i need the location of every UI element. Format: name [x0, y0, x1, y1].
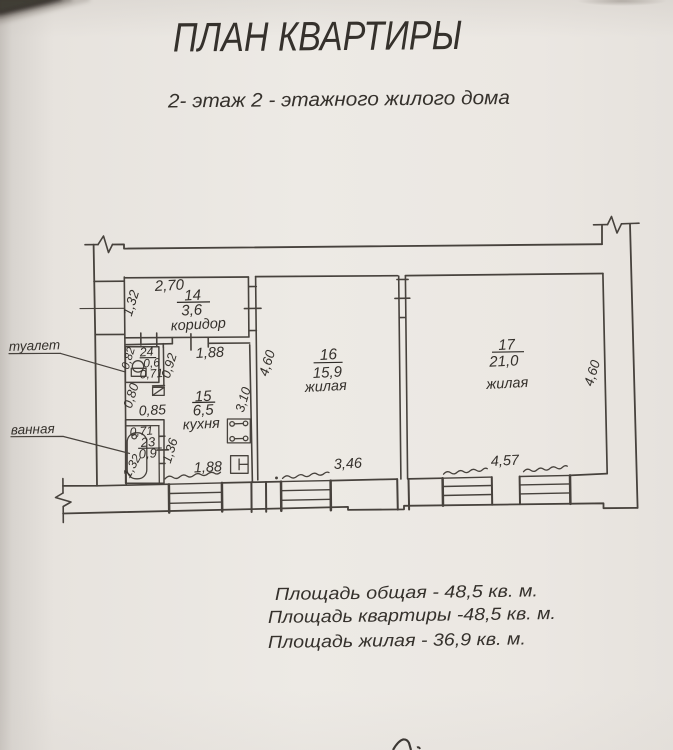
svg-text:1,88: 1,88: [193, 459, 222, 476]
svg-text:3,46: 3,46: [333, 455, 363, 473]
svg-text:Площадь общая - 48,5 кв. м.: Площадь общая - 48,5 кв. м.: [275, 580, 538, 604]
svg-text:2- этаж 2 - этажного жилого д: 2- этаж 2 - этажного жилого дома: [167, 87, 510, 113]
svg-text:коридор: коридор: [170, 316, 226, 335]
svg-text:4,57: 4,57: [490, 452, 520, 470]
svg-text:Площадь квартиры -48,5 кв. м.: Площадь квартиры -48,5 кв. м.: [268, 603, 556, 627]
svg-text:ПЛАН КВАРТИРЫ: ПЛАН КВАРТИРЫ: [173, 12, 462, 61]
svg-text:Площадь жилая - 36,9 кв. м.: Площадь жилая - 36,9 кв. м.: [268, 628, 526, 652]
svg-text:0,85: 0,85: [138, 401, 166, 418]
svg-text:21,0: 21,0: [488, 352, 520, 371]
svg-text:жилая: жилая: [485, 375, 529, 393]
svg-text:2,70: 2,70: [153, 276, 185, 295]
svg-text:ванная: ванная: [11, 421, 55, 438]
svg-text:туалет: туалет: [9, 337, 61, 354]
svg-text:1,88: 1,88: [195, 345, 224, 362]
svg-text:16: 16: [319, 346, 337, 364]
svg-text:жилая: жилая: [303, 378, 347, 396]
svg-text:кухня: кухня: [182, 416, 220, 434]
